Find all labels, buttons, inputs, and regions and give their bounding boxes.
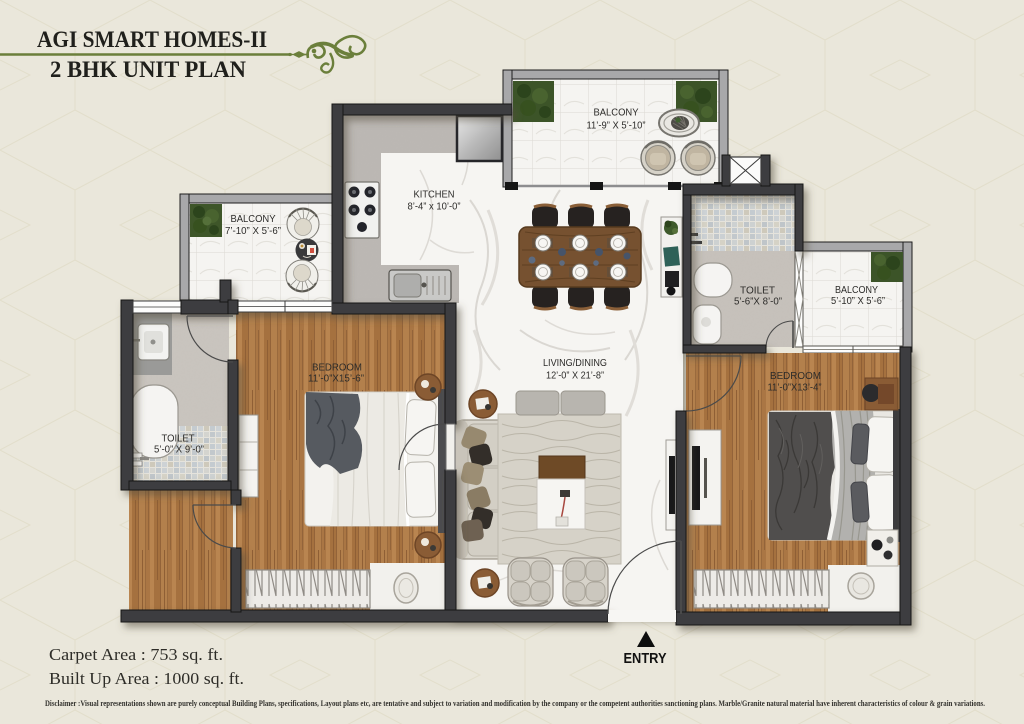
svg-text:AGI SMART HOMES-II: AGI SMART HOMES-II (37, 27, 267, 52)
svg-text:11’-0”X15’-6”: 11’-0”X15’-6” (308, 374, 365, 385)
svg-text:BALCONY: BALCONY (594, 108, 639, 119)
svg-text:LIVING/DINING: LIVING/DINING (543, 358, 607, 369)
svg-text:Built Up Area : 1000 sq. ft.: Built Up Area : 1000 sq. ft. (49, 669, 244, 688)
svg-text:BEDROOM: BEDROOM (770, 371, 821, 382)
svg-text:BEDROOM: BEDROOM (312, 363, 362, 374)
svg-text:Disclaimer :Visual representat: Disclaimer :Visual representations shown… (45, 698, 985, 708)
svg-text:TOILET: TOILET (740, 285, 776, 296)
svg-text:5’-10” X 5’-6”: 5’-10” X 5’-6” (831, 296, 886, 307)
svg-text:Carpet Area : 753 sq. ft.: Carpet Area : 753 sq. ft. (49, 645, 223, 664)
svg-text:KITCHEN: KITCHEN (414, 189, 455, 200)
svg-text:BALCONY: BALCONY (835, 285, 878, 296)
svg-text:ENTRY: ENTRY (624, 650, 667, 667)
svg-text:2 BHK UNIT PLAN: 2 BHK UNIT PLAN (50, 57, 246, 82)
svg-text:8’-4” x 10’-0”: 8’-4” x 10’-0” (408, 202, 462, 213)
svg-text:TOILET: TOILET (162, 434, 196, 445)
svg-text:12’-0” X 21’-8”: 12’-0” X 21’-8” (546, 371, 604, 382)
svg-text:BALCONY: BALCONY (231, 214, 276, 225)
svg-text:5’-6”X 8’-0”: 5’-6”X 8’-0” (734, 296, 783, 307)
svg-text:11’-0”X13’-4”: 11’-0”X13’-4” (768, 383, 823, 394)
svg-text:5’-0” X 9’-0”: 5’-0” X 9’-0” (154, 445, 205, 456)
svg-text:11’-9” X 5’-10”: 11’-9” X 5’-10” (587, 121, 647, 132)
svg-text:7’-10” X 5’-6”: 7’-10” X 5’-6” (225, 226, 282, 237)
